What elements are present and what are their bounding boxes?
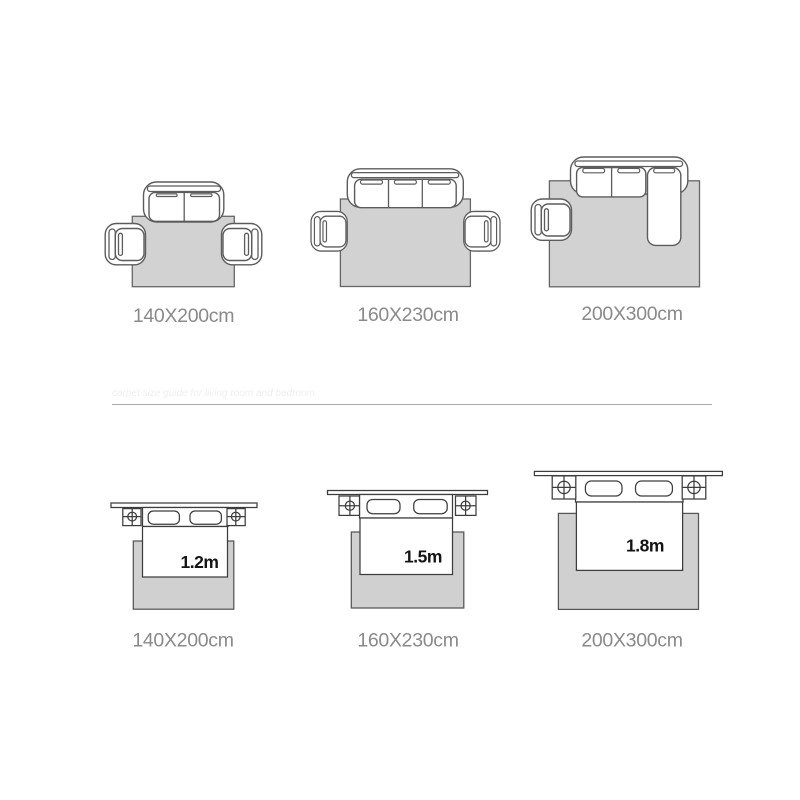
svg-text:140X200cm: 140X200cm — [132, 630, 233, 652]
svg-text:140X200cm: 140X200cm — [133, 305, 234, 327]
svg-text:200X300cm: 200X300cm — [581, 303, 682, 325]
svg-text:carpet size guide for living r: carpet size guide for living room and be… — [112, 388, 315, 399]
svg-text:200X300cm: 200X300cm — [581, 630, 682, 652]
svg-text:160X230cm: 160X230cm — [357, 304, 458, 326]
svg-text:160X230cm: 160X230cm — [357, 630, 458, 652]
svg-text:1.5m: 1.5m — [404, 547, 442, 567]
svg-text:1.2m: 1.2m — [181, 552, 219, 572]
svg-text:1.8m: 1.8m — [626, 536, 664, 556]
